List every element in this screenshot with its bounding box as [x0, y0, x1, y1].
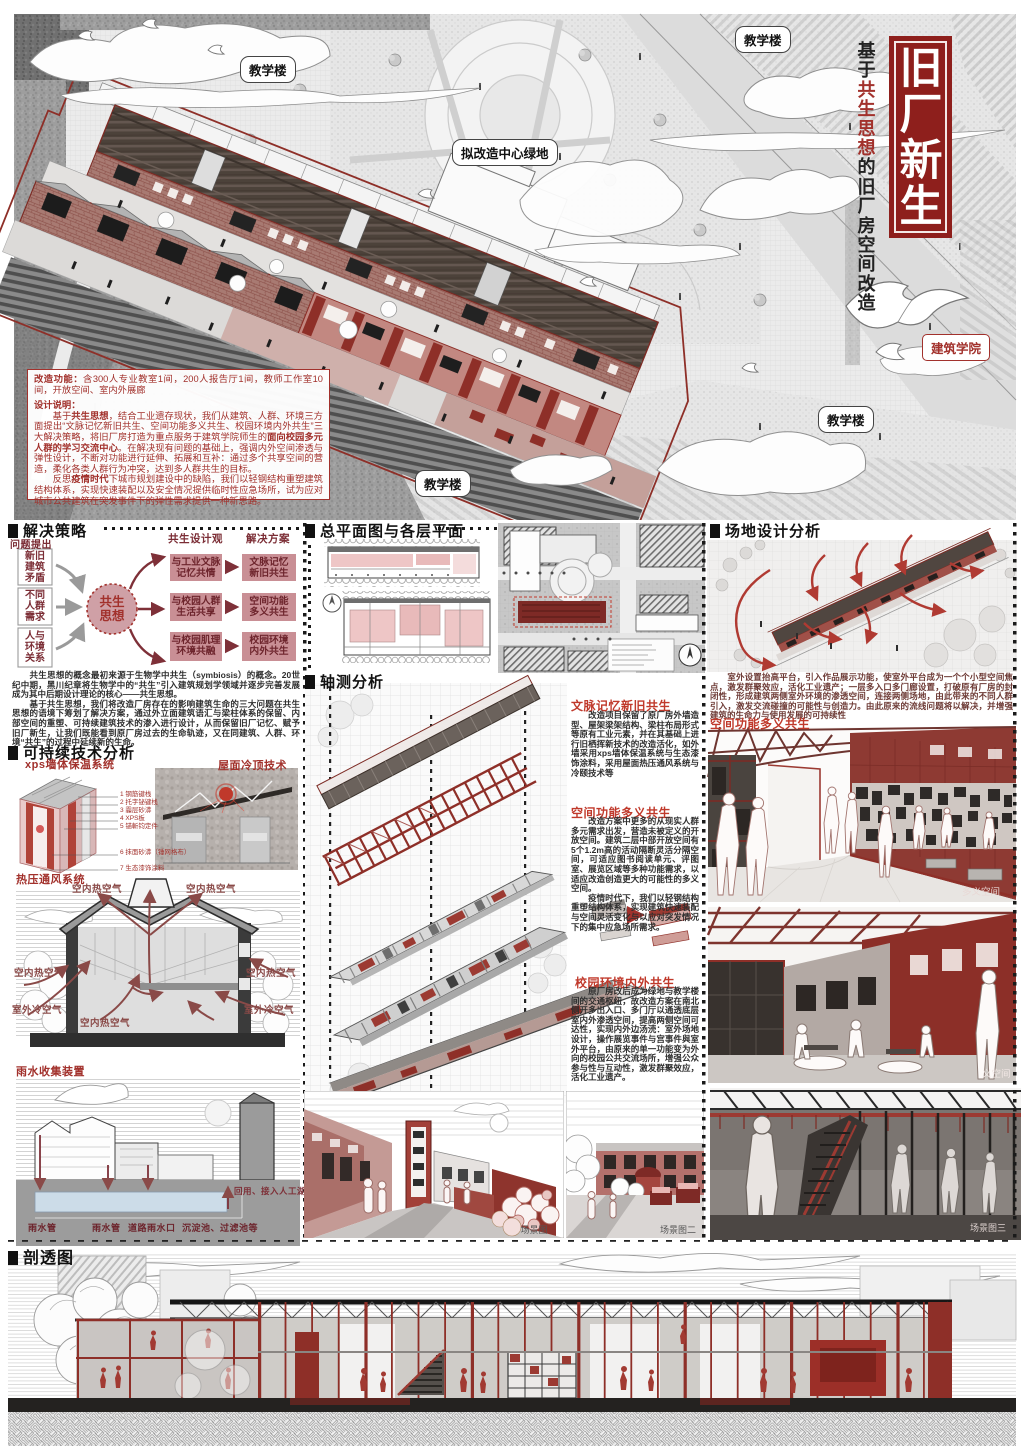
- svg-text:场景图: 场景图: [520, 1225, 547, 1235]
- svg-text:义空间: 义空间: [982, 1068, 1011, 1080]
- svg-text:多义空间: 多义空间: [962, 886, 1000, 898]
- svg-text:场景图二: 场景图二: [660, 1225, 696, 1235]
- svg-text:场景图三: 场景图三: [970, 1223, 1006, 1233]
